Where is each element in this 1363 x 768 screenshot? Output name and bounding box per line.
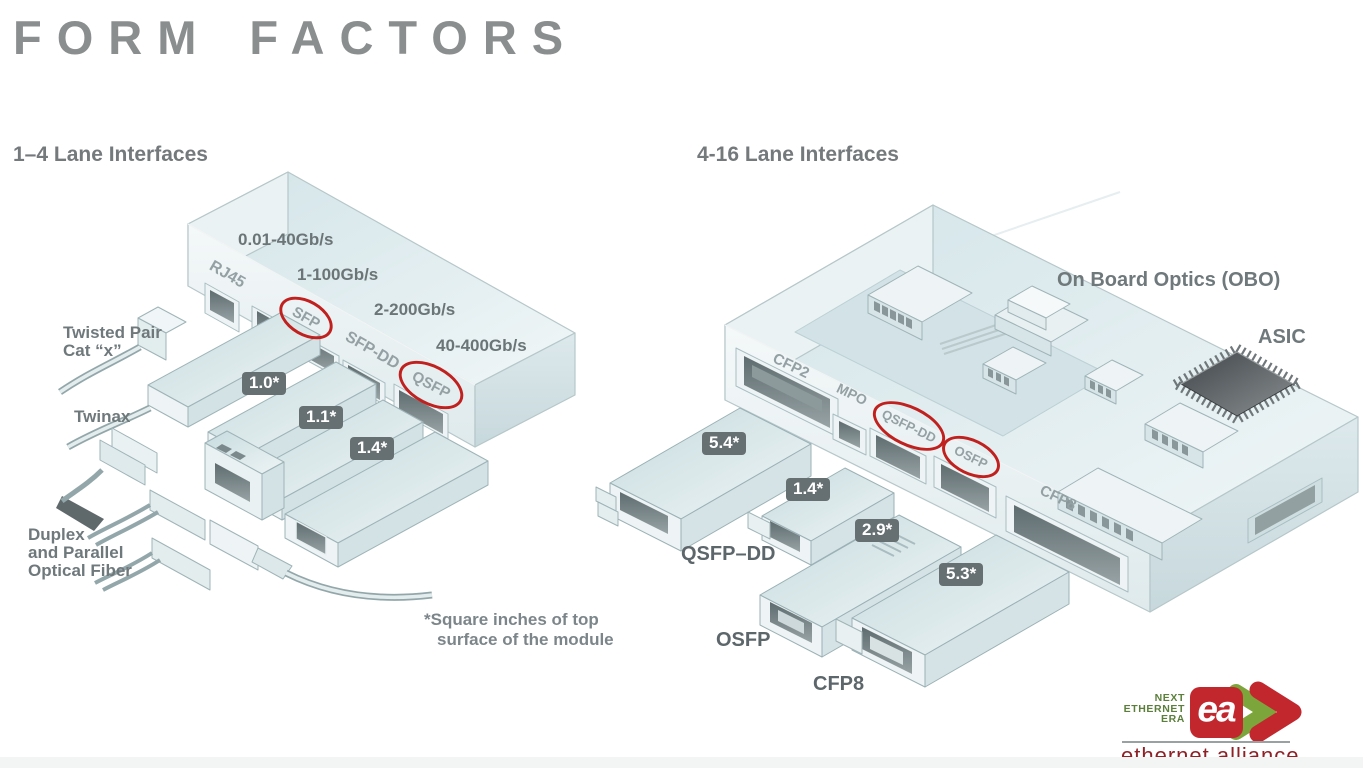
cfp8-module-size-badge: 5.3*: [939, 563, 983, 586]
fiber-label-line1: Duplex: [28, 526, 85, 544]
obo-label: On Board Optics (OBO): [1057, 271, 1280, 289]
osfp-module-name: OSFP: [716, 629, 770, 652]
logo-tagline: NEXT ETHERNET ERA: [1095, 693, 1185, 725]
twinax-label: Twinax: [74, 408, 130, 426]
mpo-plug-1: [150, 490, 205, 540]
logo-tagline-line3: ERA: [1095, 714, 1185, 725]
speed-label-2: 1-100Gb/s: [297, 265, 378, 285]
qsfp-dd-module-name: QSFP–DD: [681, 543, 775, 566]
right-section-heading: 4-16 Lane Interfaces: [697, 143, 899, 167]
logo-monogram: ea: [1197, 688, 1234, 730]
twisted-pair-label-line1: Twisted Pair: [63, 324, 162, 342]
osfp-module-size-badge: 2.9*: [855, 519, 899, 542]
diagram-artwork: [0, 0, 1363, 768]
mpo-plug-2: [152, 538, 210, 590]
cfp8-module-name: CFP8: [813, 673, 864, 696]
sfp-size-badge: 1.0*: [242, 372, 286, 395]
speed-label-4: 40-400Gb/s: [436, 336, 527, 356]
footnote-line1: *Square inches of top: [424, 610, 599, 630]
optical-plug: [210, 520, 258, 570]
page-title: FORM FACTORS: [13, 10, 578, 65]
logo-tagline-line1: NEXT: [1095, 693, 1185, 704]
twisted-pair-label-line2: Cat “x”: [63, 342, 122, 360]
lc-fiber: [62, 470, 102, 501]
qsfp-dd-module-size-badge: 1.4*: [786, 478, 830, 501]
fiber-label-line3: Optical Fiber: [28, 562, 132, 580]
speed-label-3: 2-200Gb/s: [374, 300, 455, 320]
asic-label: ASIC: [1258, 328, 1306, 346]
bottom-strip: [0, 757, 1363, 768]
speed-label-1: 0.01-40Gb/s: [238, 230, 333, 250]
fiber-label-line2: and Parallel: [28, 544, 123, 562]
slide: FORM FACTORS 1–4 Lane Interfaces 4-16 La…: [0, 0, 1363, 768]
sfp-dd-size-badge: 1.1*: [299, 406, 343, 429]
qsfp-size-badge: 1.4*: [350, 437, 394, 460]
footnote-line2: surface of the module: [437, 630, 614, 650]
cfp2-module-size-badge: 5.4*: [702, 432, 746, 455]
left-section-heading: 1–4 Lane Interfaces: [13, 143, 208, 167]
